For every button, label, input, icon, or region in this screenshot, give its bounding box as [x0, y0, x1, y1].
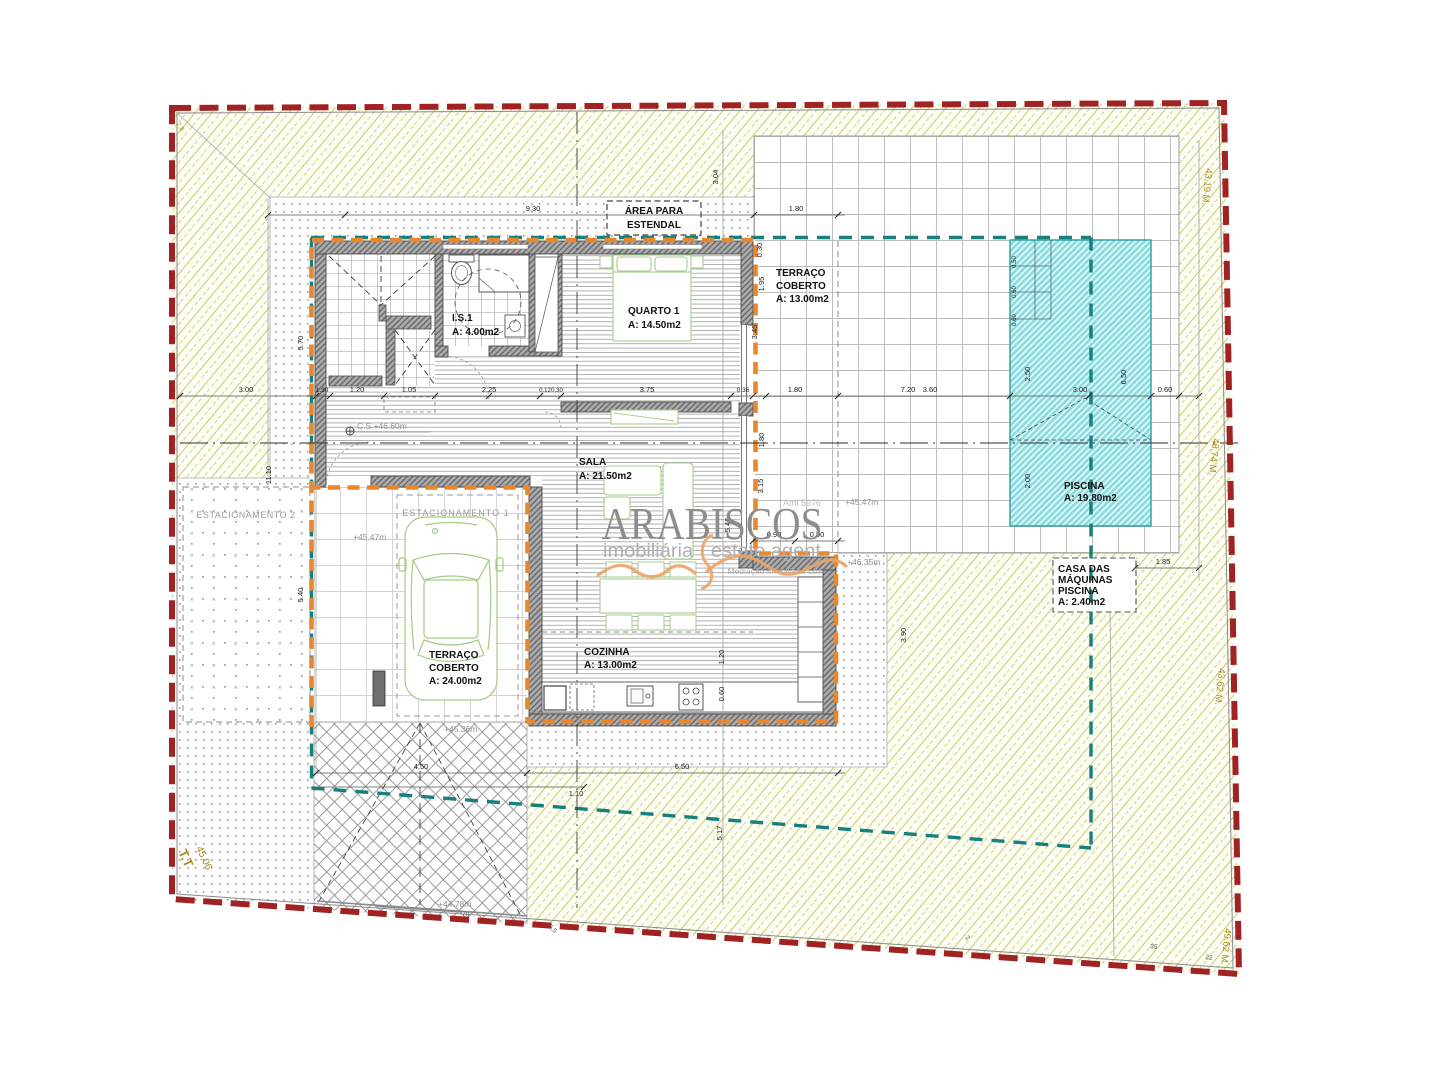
svg-text:+44.78m: +44.78m: [438, 899, 471, 909]
svg-text:A: 13.00m2: A: 13.00m2: [584, 660, 637, 671]
svg-text:4.50: 4.50: [414, 762, 429, 771]
svg-text:QUARTO 1: QUARTO 1: [628, 306, 680, 317]
svg-text:1.85: 1.85: [1156, 557, 1171, 566]
svg-text:1.05: 1.05: [402, 385, 417, 394]
svg-text:3.60: 3.60: [923, 385, 938, 394]
svg-text:2.50: 2.50: [1023, 367, 1032, 382]
svg-text:2.00: 2.00: [1023, 474, 1032, 489]
svg-text:70: 70: [462, 911, 470, 919]
svg-text:1.80: 1.80: [757, 433, 766, 448]
svg-text:0.30: 0.30: [551, 388, 563, 394]
svg-text:ÁREA PARA: ÁREA PARA: [625, 204, 683, 217]
svg-text:3.75: 3.75: [640, 385, 655, 394]
svg-text:3.15: 3.15: [756, 479, 765, 494]
svg-text:imobiliária · estate agent: imobiliária · estate agent: [603, 541, 822, 562]
svg-text:A: 24.00m2: A: 24.00m2: [429, 676, 482, 687]
svg-text:1.20: 1.20: [350, 385, 365, 394]
svg-text:TERRAÇO: TERRAÇO: [429, 650, 479, 661]
svg-text:C.S +46.60m: C.S +46.60m: [357, 421, 407, 431]
svg-text:0.60: 0.60: [1012, 286, 1018, 298]
svg-text:+45.47m: +45.47m: [845, 497, 878, 507]
svg-text:6.50: 6.50: [1119, 370, 1128, 385]
svg-text:3.00: 3.00: [239, 385, 254, 394]
svg-text:+45.36m: +45.36m: [444, 724, 477, 734]
svg-text:3.00: 3.00: [1073, 385, 1088, 394]
svg-text:3.90: 3.90: [899, 628, 908, 643]
svg-text:CASA DAS: CASA DAS: [1058, 564, 1110, 575]
svg-text:A: 19.80m2: A: 19.80m2: [1064, 493, 1117, 504]
svg-text:9.30: 9.30: [526, 204, 541, 213]
svg-text:2.25: 2.25: [482, 385, 497, 394]
svg-text:SALA: SALA: [579, 457, 606, 468]
svg-text:ESTACIONAMENTO 2: ESTACIONAMENTO 2: [196, 510, 295, 520]
svg-text:I.S.1: I.S.1: [452, 313, 473, 324]
svg-text:TERRAÇO: TERRAÇO: [776, 268, 826, 279]
svg-text:6.50: 6.50: [675, 762, 690, 771]
svg-text:0.36: 0.36: [737, 387, 750, 394]
svg-text:11.10: 11.10: [264, 466, 273, 484]
svg-text:22: 22: [1205, 954, 1214, 962]
svg-text:1.10: 1.10: [569, 789, 584, 798]
svg-text:A: 21.50m2: A: 21.50m2: [579, 471, 632, 482]
svg-text:+46.35m: +46.35m: [847, 557, 880, 567]
svg-text:1.30: 1.30: [316, 387, 329, 394]
svg-text:1.95: 1.95: [757, 277, 766, 292]
svg-text:A: 14.50m2: A: 14.50m2: [628, 320, 681, 331]
svg-text:5.70: 5.70: [296, 336, 305, 351]
svg-text:3.45: 3.45: [750, 325, 759, 340]
svg-text:0.50: 0.50: [1012, 256, 1018, 268]
svg-text:35: 35: [1150, 943, 1159, 951]
svg-text:7.20: 7.20: [901, 385, 916, 394]
svg-text:1.20: 1.20: [717, 650, 726, 665]
svg-text:0.60: 0.60: [1158, 385, 1173, 394]
svg-text:MÁQUINAS: MÁQUINAS: [1058, 573, 1113, 586]
svg-text:0.12: 0.12: [539, 388, 551, 394]
svg-text:A: 4.00m2: A: 4.00m2: [452, 327, 500, 338]
svg-text:1.80: 1.80: [789, 204, 804, 213]
svg-text:5.40: 5.40: [296, 588, 305, 603]
svg-text:ESTACIONAMENTO 1: ESTACIONAMENTO 1: [402, 508, 509, 518]
svg-text:+45.47m: +45.47m: [353, 532, 386, 542]
svg-text:A: 13.00m2: A: 13.00m2: [776, 294, 829, 305]
svg-text:5.17: 5.17: [715, 826, 724, 841]
svg-text:0.60: 0.60: [717, 687, 726, 702]
svg-text:0.30: 0.30: [755, 243, 764, 258]
svg-text:0.60: 0.60: [1012, 314, 1018, 326]
svg-text:A: 2.40m2: A: 2.40m2: [1058, 597, 1106, 608]
svg-text:COZINHA: COZINHA: [584, 647, 630, 658]
svg-text:COBERTO: COBERTO: [776, 281, 826, 292]
svg-text:1.80: 1.80: [788, 385, 803, 394]
svg-text:3.04: 3.04: [711, 170, 720, 185]
svg-text:ESTENDAL: ESTENDAL: [627, 220, 681, 231]
svg-text:PISCINA: PISCINA: [1064, 481, 1105, 492]
svg-text:PISCINA: PISCINA: [1058, 586, 1099, 597]
svg-text:COBERTO: COBERTO: [429, 663, 479, 674]
